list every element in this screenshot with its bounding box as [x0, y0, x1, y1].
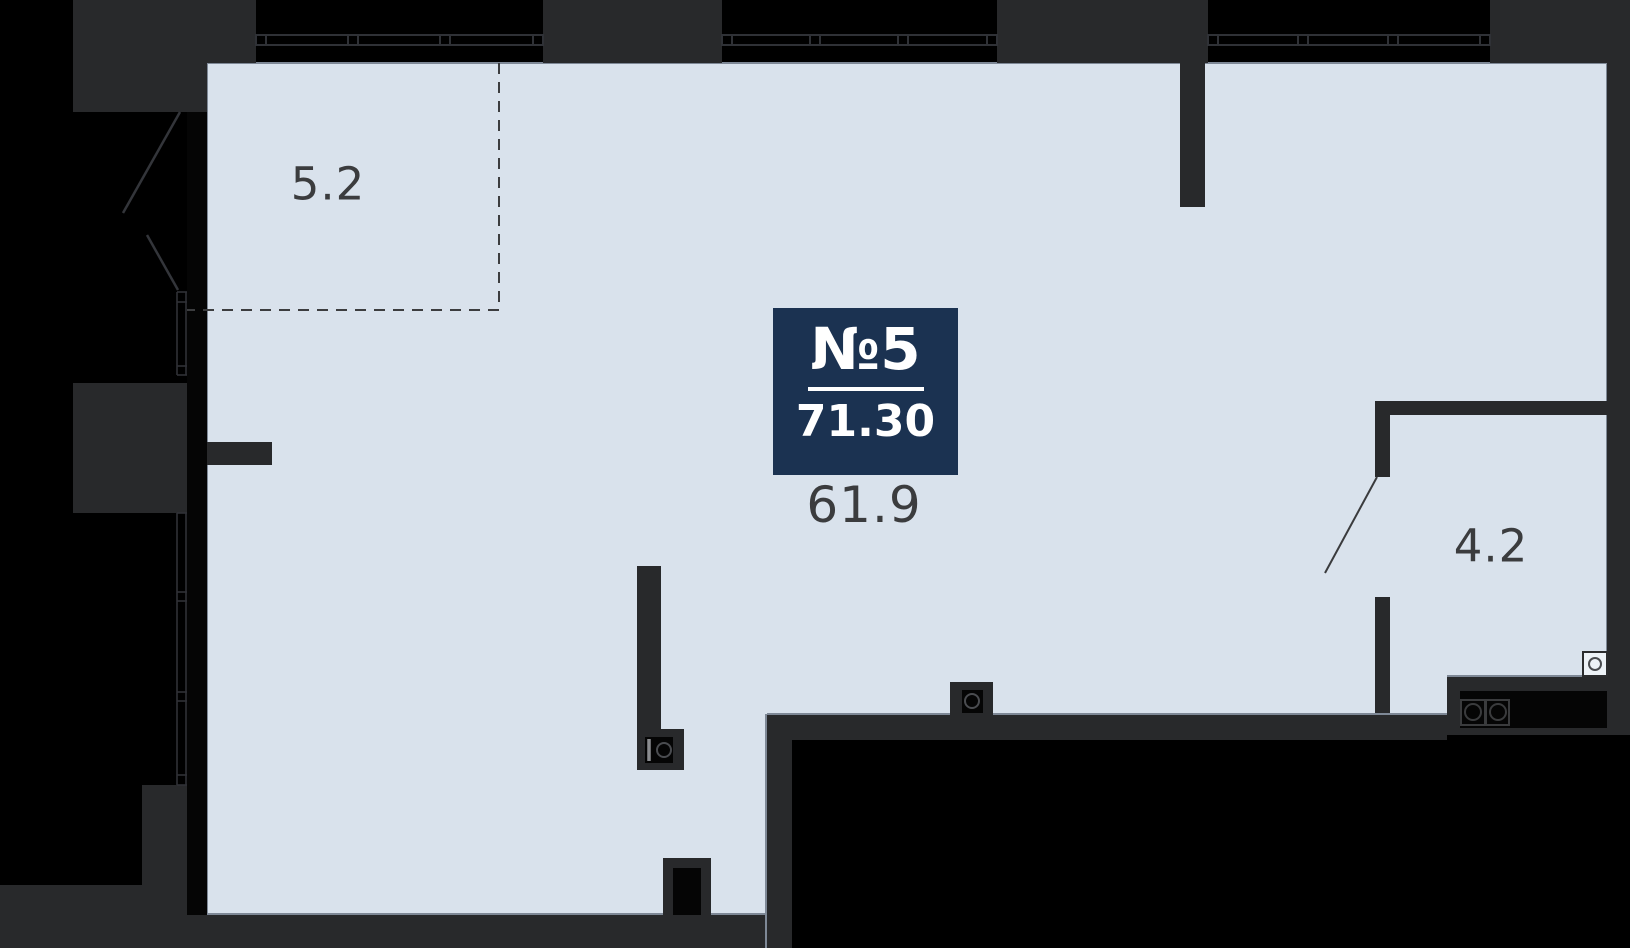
window-glazing-icon: [177, 292, 187, 785]
bath-wall-top: [1375, 401, 1607, 415]
badge-divider-line: [808, 387, 924, 391]
left-wall-strip: [187, 112, 207, 915]
unit-badge[interactable]: №5 71.30: [773, 308, 958, 475]
area-label-main-room: 61.9: [806, 480, 921, 530]
area-label-bathroom: 4.2: [1454, 524, 1529, 569]
unit-number: №5: [810, 320, 920, 379]
window-glazing-icon: [256, 35, 543, 45]
shaft-block: [673, 868, 701, 915]
kitchen-counter: [1460, 691, 1607, 728]
window-glazing-icon: [722, 35, 997, 45]
door-swing-icon: [123, 112, 180, 290]
bath-wall-jamb-bottom: [1375, 597, 1390, 717]
window-glazing-icon: [1208, 35, 1490, 45]
bath-wall-jamb-top: [1375, 401, 1390, 477]
unit-total-area: 71.30: [796, 400, 935, 444]
area-label-loggia: 5.2: [291, 162, 366, 207]
washing-machine-icon: [1583, 652, 1607, 676]
floor-plan-canvas: №5 71.30 5.2 61.9 4.2: [0, 0, 1630, 948]
top-windows: [256, 35, 1490, 45]
